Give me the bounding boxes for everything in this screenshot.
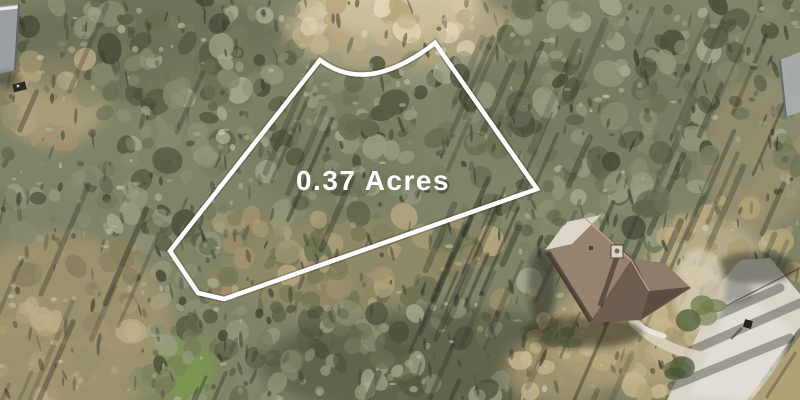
lot-boundary-overlay [0, 0, 800, 400]
acreage-label: 0.37 Acres [296, 165, 450, 197]
aerial-photo: 0.37 Acres [0, 0, 800, 400]
